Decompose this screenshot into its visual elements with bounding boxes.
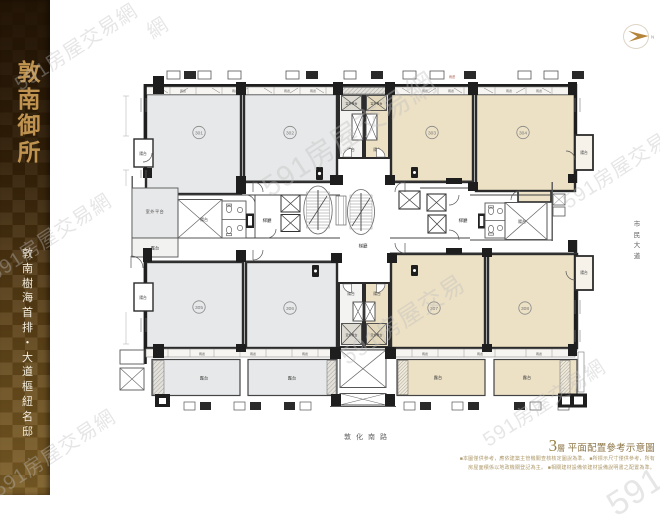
svg-text:陽台: 陽台 <box>139 151 147 156</box>
svg-text:露台: 露台 <box>288 375 296 382</box>
svg-text:雨遮: 雨遮 <box>536 351 542 356</box>
svg-text:307: 307 <box>430 306 438 312</box>
svg-text:室外平台: 室外平台 <box>146 208 165 215</box>
svg-text:305: 305 <box>195 305 203 311</box>
svg-text:雨遮: 雨遮 <box>250 351 256 356</box>
svg-text:雨遮: 雨遮 <box>284 88 290 93</box>
svg-text:雨遮: 雨遮 <box>180 88 186 93</box>
svg-text:雨遮: 雨遮 <box>536 88 542 93</box>
svg-text:室外機台: 室外機台 <box>345 101 357 106</box>
svg-text:雨遮: 雨遮 <box>422 88 428 93</box>
svg-text:梯廳: 梯廳 <box>459 217 468 224</box>
svg-text:306: 306 <box>286 306 294 312</box>
svg-text:雨遮: 雨遮 <box>422 351 428 356</box>
svg-text:301: 301 <box>195 130 203 136</box>
svg-text:雨遮: 雨遮 <box>199 351 205 356</box>
svg-text:303: 303 <box>428 130 436 136</box>
svg-text:雨遮: 雨遮 <box>310 88 316 93</box>
svg-text:露台: 露台 <box>151 245 159 252</box>
svg-text:室外機台: 室外機台 <box>370 101 382 106</box>
svg-text:雨遮: 雨遮 <box>302 351 308 356</box>
svg-text:304: 304 <box>519 130 527 136</box>
svg-text:陽台: 陽台 <box>139 295 147 300</box>
svg-text:雨遮: 雨遮 <box>506 88 512 93</box>
svg-text:露台: 露台 <box>200 375 208 382</box>
svg-text:雨遮: 雨遮 <box>448 88 454 93</box>
svg-text:室外機台: 室外機台 <box>370 332 382 337</box>
svg-text:雨遮: 雨遮 <box>449 74 456 79</box>
svg-text:陽台: 陽台 <box>518 218 526 224</box>
svg-text:N: N <box>651 35 654 40</box>
svg-text:陽台: 陽台 <box>200 216 208 222</box>
svg-text:陽台: 陽台 <box>580 150 588 155</box>
svg-text:陽台: 陽台 <box>580 270 588 275</box>
svg-text:梯廳: 梯廳 <box>263 217 272 224</box>
svg-text:302: 302 <box>286 130 294 136</box>
svg-text:梯廳: 梯廳 <box>359 243 368 250</box>
svg-text:308: 308 <box>521 306 529 312</box>
svg-text:室外機台: 室外機台 <box>345 332 357 337</box>
svg-text:露台: 露台 <box>523 374 531 381</box>
svg-text:露台: 露台 <box>434 374 442 381</box>
